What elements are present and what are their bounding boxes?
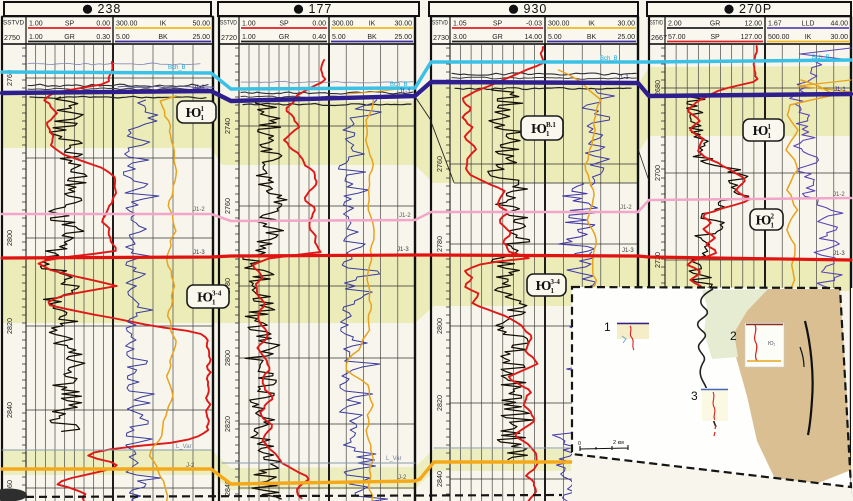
svg-text:5.00: 5.00 — [548, 34, 562, 41]
svg-text:30.00: 30.00 — [394, 21, 412, 28]
svg-text:177: 177 — [309, 2, 333, 16]
svg-text:LLD: LLD — [802, 21, 815, 28]
svg-text:30.00: 30.00 — [830, 34, 848, 41]
svg-text:2800: 2800 — [5, 230, 14, 246]
svg-text:2800: 2800 — [223, 350, 232, 366]
svg-text:3-4: 3-4 — [212, 290, 222, 298]
svg-text:238: 238 — [98, 2, 122, 16]
svg-text:300.00: 300.00 — [332, 21, 354, 28]
svg-text:IK: IK — [369, 21, 376, 28]
svg-text:1.00: 1.00 — [29, 34, 43, 41]
svg-text:2720: 2720 — [653, 252, 662, 268]
svg-text:127.00: 127.00 — [741, 34, 763, 41]
svg-text:J1-3: J1-3 — [397, 247, 409, 253]
svg-text:50.00: 50.00 — [192, 21, 210, 28]
svg-text:J1-2: J1-2 — [620, 205, 632, 211]
svg-text:IK: IK — [160, 21, 167, 28]
svg-text:2.00: 2.00 — [668, 21, 682, 28]
svg-text:IK: IK — [588, 21, 595, 28]
svg-text:2700: 2700 — [653, 165, 662, 181]
svg-text:1: 1 — [771, 222, 775, 230]
svg-text:J1-2: J1-2 — [193, 207, 205, 213]
svg-text:-0.03: -0.03 — [526, 21, 542, 28]
svg-text:2780: 2780 — [435, 236, 444, 252]
svg-text:1: 1 — [604, 320, 611, 334]
svg-text:SP: SP — [279, 21, 289, 28]
svg-text:IK: IK — [805, 34, 812, 41]
svg-text:SSTVD: SSTVD — [220, 20, 237, 27]
svg-text:0.40: 0.40 — [312, 34, 326, 41]
svg-text:2800: 2800 — [435, 318, 444, 334]
svg-text:Ю: Ю — [197, 291, 213, 306]
svg-text:2840: 2840 — [5, 402, 14, 418]
svg-text:2820: 2820 — [435, 395, 444, 411]
svg-text:1.67: 1.67 — [768, 21, 782, 28]
svg-text:J1-2: J1-2 — [399, 213, 411, 219]
svg-text:300.00: 300.00 — [548, 21, 570, 28]
svg-text:270P: 270P — [739, 2, 772, 16]
svg-text:2: 2 — [771, 213, 775, 221]
svg-text:2720: 2720 — [221, 33, 237, 42]
svg-text:2750: 2750 — [4, 33, 20, 42]
svg-text:3-4: 3-4 — [551, 278, 561, 286]
svg-text:Ю₁: Ю₁ — [768, 341, 776, 347]
svg-text:0.30: 0.30 — [96, 34, 110, 41]
svg-text:2760: 2760 — [223, 198, 232, 214]
svg-text:J1-3: J1-3 — [622, 248, 634, 254]
svg-text:2840: 2840 — [435, 471, 444, 487]
svg-text:GR: GR — [279, 34, 290, 41]
svg-text:2667: 2667 — [651, 33, 667, 42]
svg-text:3: 3 — [691, 389, 698, 403]
svg-text:2 км: 2 км — [613, 440, 624, 446]
svg-text:J1-1: J1-1 — [399, 89, 411, 95]
svg-text:2680: 2680 — [653, 80, 662, 96]
svg-text:J-2: J-2 — [186, 463, 195, 469]
svg-text:J1-1: J1-1 — [193, 85, 205, 91]
svg-text:57.00: 57.00 — [668, 34, 686, 41]
svg-text:GR: GR — [492, 34, 503, 41]
svg-text:25.00: 25.00 — [617, 34, 635, 41]
svg-text:1.00: 1.00 — [29, 21, 43, 28]
svg-text:J1-3: J1-3 — [193, 250, 205, 256]
svg-text:J1-1: J1-1 — [834, 87, 846, 93]
svg-text:300.00: 300.00 — [116, 21, 138, 28]
svg-text:2760: 2760 — [435, 156, 444, 172]
svg-text:Ю: Ю — [531, 122, 547, 137]
svg-text:Bch_B: Bch_B — [168, 65, 186, 71]
svg-text:SSTVD: SSTVD — [650, 20, 663, 27]
svg-text:BK: BK — [367, 34, 377, 41]
svg-text:2: 2 — [730, 329, 737, 343]
svg-text:J1-1: J1-1 — [617, 75, 629, 81]
svg-text:5.00: 5.00 — [332, 34, 346, 41]
svg-text:Ю: Ю — [756, 214, 772, 229]
svg-text:2820: 2820 — [5, 318, 14, 334]
svg-text:SSTVD: SSTVD — [432, 20, 448, 27]
svg-text:1.00: 1.00 — [242, 34, 256, 41]
svg-text:GR: GR — [64, 34, 75, 41]
svg-text:SSTVD: SSTVD — [3, 20, 25, 27]
svg-text:Bch_B: Bch_B — [600, 56, 618, 62]
svg-text:14.00: 14.00 — [524, 34, 542, 41]
svg-text:2820: 2820 — [223, 416, 232, 432]
svg-text:1.05: 1.05 — [453, 21, 467, 28]
svg-text:1: 1 — [768, 123, 772, 131]
svg-text:L_Var: L_Var — [176, 444, 192, 450]
svg-text:930: 930 — [524, 2, 548, 16]
svg-text:SP: SP — [710, 34, 720, 41]
svg-text:30.00: 30.00 — [617, 21, 635, 28]
svg-text:BK: BK — [587, 34, 597, 41]
svg-text:BK: BK — [158, 34, 168, 41]
svg-text:GR: GR — [710, 21, 721, 28]
svg-text:SP: SP — [493, 21, 503, 28]
svg-text:В.1: В.1 — [546, 121, 556, 129]
svg-text:1: 1 — [768, 132, 772, 140]
svg-text:2740: 2740 — [223, 118, 232, 134]
svg-text:J1-3: J1-3 — [833, 251, 845, 257]
svg-text:Ю: Ю — [753, 124, 769, 139]
svg-text:0.00: 0.00 — [96, 21, 110, 28]
svg-text:1: 1 — [212, 299, 216, 307]
svg-text:J-2: J-2 — [398, 475, 407, 481]
svg-text:1.00: 1.00 — [242, 21, 256, 28]
svg-text:Bch_B: Bch_B — [812, 55, 830, 61]
svg-text:Ю: Ю — [536, 279, 552, 294]
svg-text:3.00: 3.00 — [453, 34, 467, 41]
svg-text:0.00: 0.00 — [312, 21, 326, 28]
svg-text:5.00: 5.00 — [116, 34, 130, 41]
svg-text:Bch_B: Bch_B — [390, 82, 408, 88]
svg-text:500.00: 500.00 — [768, 34, 790, 41]
svg-text:25.00: 25.00 — [394, 34, 412, 41]
svg-text:12.00: 12.00 — [744, 21, 762, 28]
svg-text:1: 1 — [201, 114, 205, 122]
svg-text:SP: SP — [65, 21, 75, 28]
svg-text:1: 1 — [201, 105, 205, 113]
svg-text:L_Var: L_Var — [386, 456, 402, 462]
svg-text:2730: 2730 — [433, 33, 449, 42]
svg-text:Ю: Ю — [186, 106, 202, 121]
svg-text:1: 1 — [546, 130, 550, 138]
svg-text:1: 1 — [551, 287, 555, 295]
svg-text:25.00: 25.00 — [192, 34, 210, 41]
svg-text:J1-2: J1-2 — [833, 192, 845, 198]
svg-text:44.00: 44.00 — [830, 21, 848, 28]
